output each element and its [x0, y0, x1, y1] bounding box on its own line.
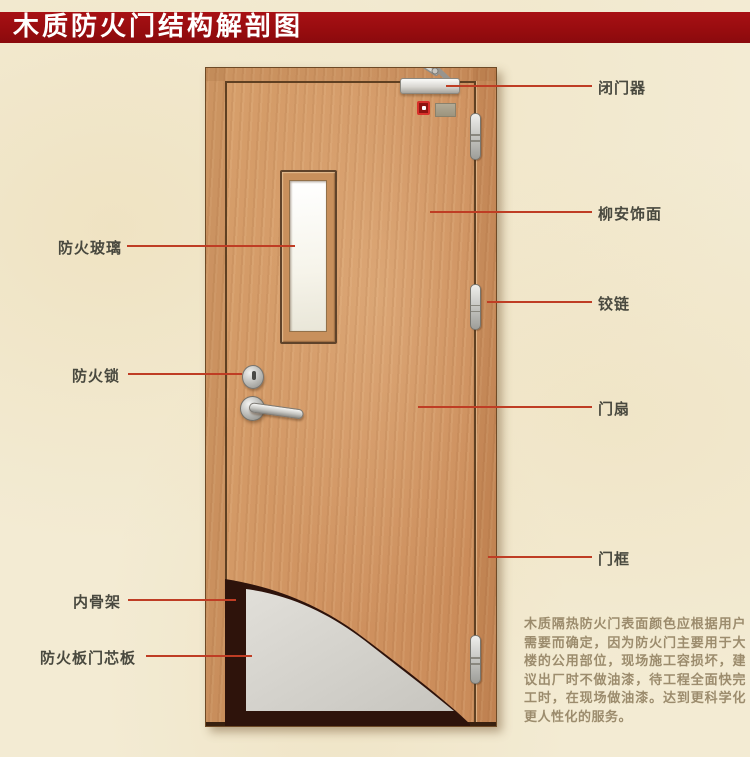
fire-glass-pane: [289, 180, 327, 332]
label-door-leaf: 门扇: [598, 398, 630, 419]
label-inner-skeleton: 内骨架: [73, 591, 121, 612]
diagram-page: 木质防火门结构解剖图: [0, 0, 750, 757]
cutaway-section: [220, 577, 472, 727]
hinge-bottom: [470, 635, 481, 684]
label-door-closer: 闭门器: [598, 77, 646, 98]
callout-line-door-frame: [488, 556, 592, 558]
hinge-top: [470, 113, 481, 160]
label-core-board: 防火板门芯板: [40, 647, 136, 668]
hinge-middle: [470, 284, 481, 330]
callout-line-inner-skeleton: [128, 599, 236, 601]
label-door-frame: 门框: [598, 548, 630, 569]
callout-line-veneer: [430, 211, 592, 213]
fire-door-illustration: [205, 67, 497, 727]
hinge-knuckle: [471, 134, 480, 136]
callout-line-hinge: [487, 301, 592, 303]
fire-lock-deadbolt: [242, 365, 264, 389]
fire-safety-sign: [417, 101, 430, 115]
label-hinge: 铰链: [598, 293, 630, 314]
hinge-knuckle: [471, 311, 480, 313]
hinge-knuckle: [471, 663, 480, 665]
leaf-frame-gap-highlight: [476, 81, 477, 727]
label-veneer: 柳安饰面: [598, 203, 662, 224]
label-fire-glass: 防火玻璃: [58, 237, 122, 258]
hinge-knuckle: [471, 657, 480, 659]
product-description: 木质隔热防火门表面颜色应根据用户需要而确定，因为防火门主要用于大楼的公用部位，现…: [524, 616, 746, 727]
keyhole: [252, 371, 256, 380]
callout-line-door-closer: [446, 85, 592, 87]
fire-glass-window-frame: [280, 170, 337, 344]
label-fire-lock: 防火锁: [72, 365, 120, 386]
callout-line-fire-glass: [127, 245, 295, 247]
callout-line-core-board: [146, 655, 252, 657]
callout-line-fire-lock: [128, 373, 242, 375]
fire-sign-glyph: [422, 106, 426, 110]
page-title: 木质防火门结构解剖图: [0, 12, 750, 42]
hinge-knuckle: [471, 305, 480, 307]
title-banner: 木质防火门结构解剖图: [0, 12, 750, 43]
name-plaque: [435, 103, 456, 117]
callout-line-door-leaf: [418, 406, 592, 408]
hinge-knuckle: [471, 140, 480, 142]
core-board-gray-panel: [246, 589, 454, 711]
